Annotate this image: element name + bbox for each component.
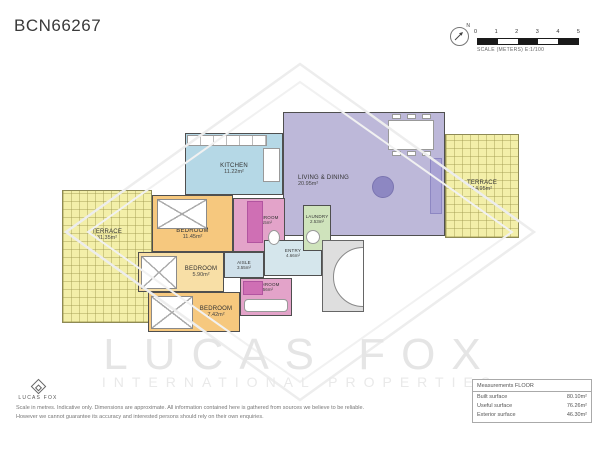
bathtub-symbol — [244, 299, 288, 312]
room-area: 31.35m² — [97, 235, 117, 241]
compass-icon: N — [450, 27, 469, 46]
room-area: 14.95m² — [472, 186, 492, 192]
lucas-fox-logo: LUCAS FOX — [16, 381, 60, 401]
room-label: AISLE 3.55m² — [225, 253, 263, 277]
room-area: 2.53m² — [310, 219, 324, 224]
disclaimer-line-2: However we cannot guarantee its accuracy… — [16, 413, 576, 422]
room-area: 3.55m² — [237, 265, 251, 270]
room-area: 20.95m² — [298, 181, 318, 187]
toilet-symbol — [268, 230, 280, 245]
sofa-symbol — [430, 158, 442, 214]
bed-symbol — [157, 199, 207, 229]
scale-tick: 4 — [556, 29, 559, 35]
room-label: TERRACE 14.95m² — [446, 135, 518, 237]
room-terrace-right: TERRACE 14.95m² — [445, 134, 519, 238]
chair-symbol — [407, 114, 416, 119]
room-aisle: AISLE 3.55m² — [224, 252, 264, 278]
room-area: 4.66m² — [286, 253, 300, 258]
page-title: BCN66267 — [14, 16, 101, 36]
chair-symbol — [392, 151, 401, 156]
chair-symbol — [392, 114, 401, 119]
chair-symbol — [422, 114, 431, 119]
shower-symbol — [243, 281, 263, 295]
brand-name: LUCAS FOX — [16, 395, 60, 401]
shower-symbol — [247, 201, 263, 243]
scale-tick: 5 — [577, 29, 580, 35]
watermark-brand-text: LUCAS FOX — [0, 330, 600, 380]
scale-bar — [477, 38, 579, 45]
scale-tick: 2 — [515, 29, 518, 35]
round-table-symbol — [372, 176, 394, 198]
dining-table-symbol — [388, 120, 434, 150]
compass-arrow-icon — [451, 28, 467, 44]
washer-symbol — [306, 230, 320, 244]
kitchen-appliance-symbol — [263, 148, 280, 182]
measurements-header: Measurements FLOOR — [473, 380, 591, 392]
stair-curve — [333, 247, 364, 307]
bed-symbol — [151, 296, 193, 329]
room-area: 5.90m² — [192, 272, 209, 278]
chair-symbol — [407, 151, 416, 156]
room-area: 11.45m² — [183, 234, 203, 240]
measurement-value: 80.10m² — [567, 394, 587, 400]
kitchen-counter-symbol — [187, 135, 267, 146]
floorplan-page: BCN66267 N 0 1 2 3 4 5 SCALE (METERS) E:… — [0, 0, 600, 450]
measurement-label: Built surface — [477, 394, 507, 400]
room-area: 7.42m² — [207, 312, 224, 318]
scale-bar-ticks: 0 1 2 3 4 5 — [474, 29, 580, 35]
disclaimer-text: Scale in metres. Indicative only. Dimens… — [16, 404, 576, 422]
bed-symbol — [141, 256, 177, 289]
scale-tick: 0 — [474, 29, 477, 35]
compass-north-label: N — [466, 23, 470, 29]
disclaimer-line-1: Scale in metres. Indicative only. Dimens… — [16, 404, 576, 413]
scale-tick: 1 — [495, 29, 498, 35]
scale-caption: SCALE (METERS) E:1/100 — [477, 47, 544, 53]
scale-tick: 3 — [536, 29, 539, 35]
measurement-row: Built surface 80.10m² — [473, 392, 591, 401]
diamond-logo-icon — [30, 379, 46, 395]
stairwell — [322, 240, 364, 312]
chair-symbol — [422, 151, 431, 156]
room-area: 11.22m² — [224, 169, 244, 175]
